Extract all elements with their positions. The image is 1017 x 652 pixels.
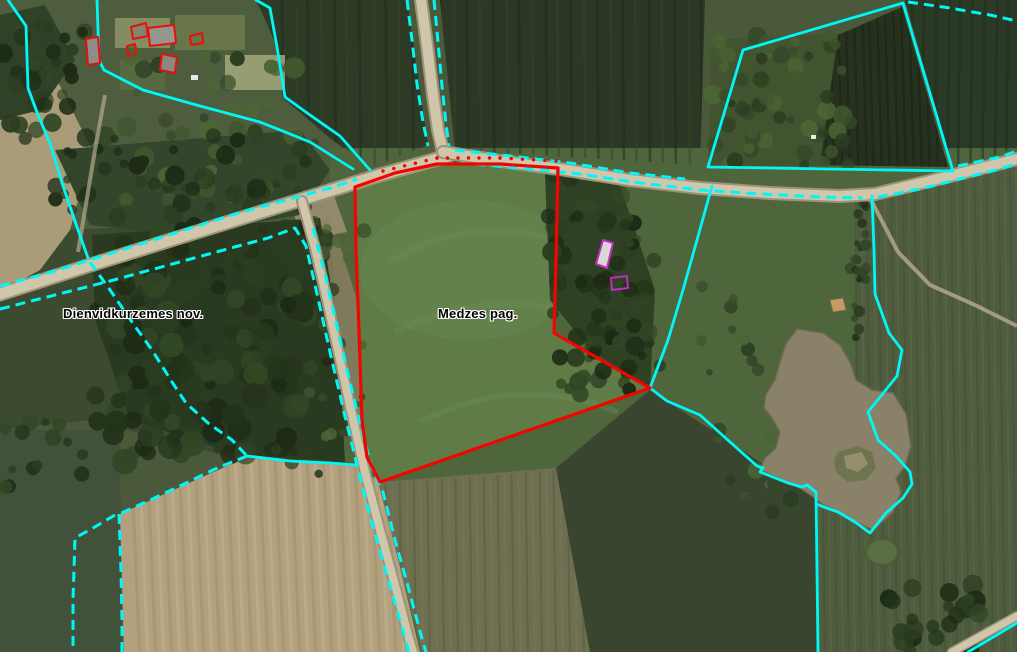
map-canvas[interactable]: Dienvidkurzemes nov. Medzes pag. — [0, 0, 1017, 652]
cadastral-overlay — [0, 0, 1017, 652]
